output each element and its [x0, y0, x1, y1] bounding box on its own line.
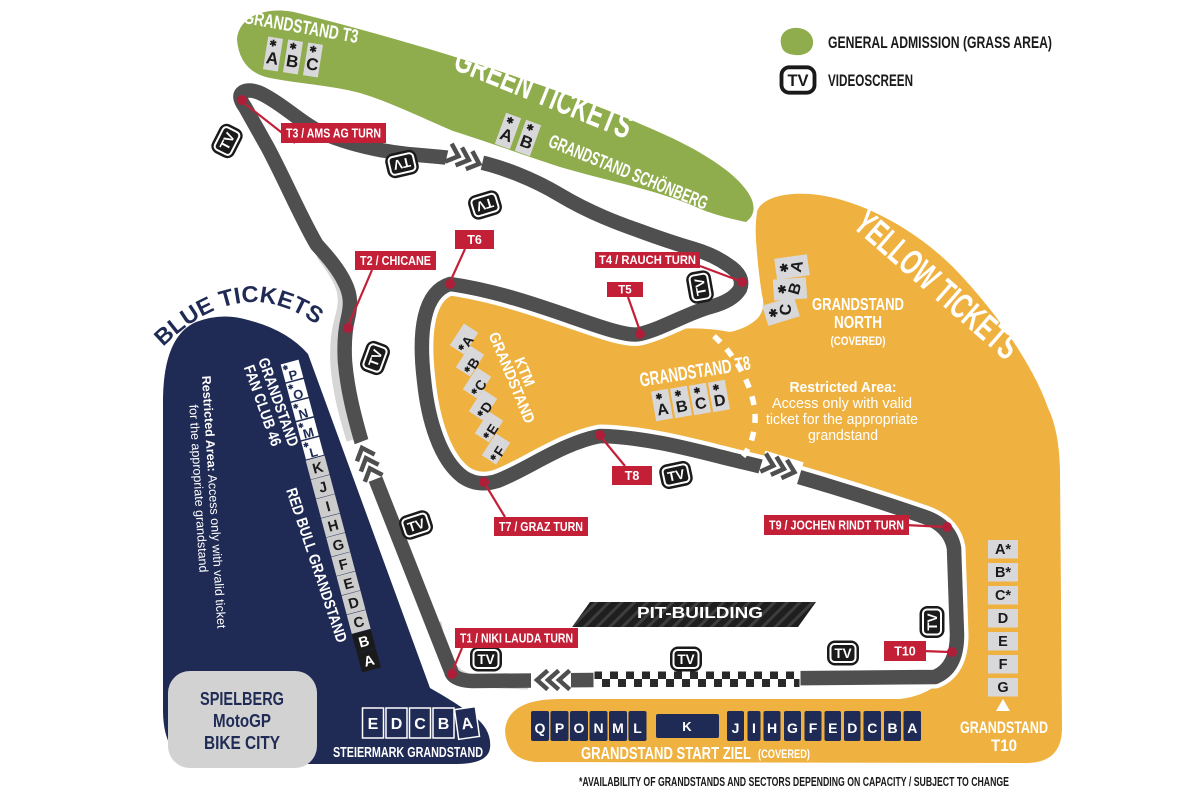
svg-text:F: F — [999, 657, 1008, 673]
svg-text:T10: T10 — [894, 645, 916, 659]
svg-text:F: F — [809, 720, 818, 736]
svg-text:M: M — [612, 720, 624, 736]
svg-text:C: C — [414, 716, 426, 733]
svg-text:TV: TV — [834, 646, 851, 661]
svg-text:STEIERMARK GRANDSTAND: STEIERMARK GRANDSTAND — [333, 744, 483, 761]
svg-text:H: H — [767, 720, 777, 736]
svg-text:NORTH: NORTH — [834, 312, 882, 332]
svg-text:*AVAILABILITY OF GRANDSTANDS A: *AVAILABILITY OF GRANDSTANDS AND SECTORS… — [579, 775, 1009, 789]
svg-text:E: E — [828, 720, 837, 736]
svg-text:T10: T10 — [991, 736, 1017, 755]
svg-text:G: G — [787, 720, 798, 736]
svg-text:TV: TV — [925, 613, 940, 630]
svg-text:G: G — [997, 680, 1008, 696]
svg-text:J: J — [732, 720, 740, 736]
svg-text:A: A — [907, 720, 917, 736]
svg-text:T3 / AMS AG TURN: T3 / AMS AG TURN — [286, 127, 381, 141]
svg-text:T5: T5 — [618, 285, 632, 297]
svg-text:Restricted Area:: Restricted Area: — [790, 379, 897, 396]
svg-text:T9 / JOCHEN RINDT TURN: T9 / JOCHEN RINDT TURN — [769, 519, 904, 533]
svg-text:D: D — [998, 611, 1008, 627]
svg-text:T2 / CHICANE: T2 / CHICANE — [360, 254, 431, 268]
svg-text:T8: T8 — [625, 469, 640, 483]
svg-text:TV: TV — [477, 652, 494, 667]
svg-text:TV: TV — [677, 652, 694, 667]
svg-text:Q: Q — [535, 720, 546, 736]
svg-text:✱: ✱ — [768, 308, 780, 318]
svg-text:B: B — [438, 716, 450, 733]
svg-text:(COVERED): (COVERED) — [831, 336, 886, 348]
svg-text:grandstand: grandstand — [808, 427, 878, 444]
svg-text:TV: TV — [692, 277, 710, 297]
svg-text:Access only with valid: Access only with valid — [772, 395, 912, 412]
svg-text:B: B — [887, 720, 897, 736]
svg-text:GRANDSTAND: GRANDSTAND — [960, 718, 1048, 737]
svg-text:SPIELBERG: SPIELBERG — [200, 689, 284, 709]
svg-text:C*: C* — [995, 588, 1011, 604]
svg-text:VIDEOSCREEN: VIDEOSCREEN — [828, 71, 913, 90]
svg-text:N: N — [593, 720, 603, 736]
svg-text:PIT-BUILDING: PIT-BUILDING — [637, 605, 763, 622]
svg-text:A*: A* — [995, 542, 1011, 558]
svg-text:GENERAL ADMISSION (GRASS AREA): GENERAL ADMISSION (GRASS AREA) — [828, 33, 1052, 52]
svg-text:P: P — [555, 720, 564, 736]
svg-text:E: E — [998, 634, 1008, 650]
svg-text:O: O — [574, 720, 585, 736]
svg-text:E: E — [368, 716, 379, 733]
svg-text:T4 / RAUCH TURN: T4 / RAUCH TURN — [599, 255, 696, 267]
svg-text:BIKE CITY: BIKE CITY — [204, 733, 280, 753]
svg-text:I: I — [752, 720, 756, 736]
svg-text:(COVERED): (COVERED) — [758, 747, 810, 761]
svg-text:GRANDSTAND: GRANDSTAND — [812, 294, 904, 314]
svg-text:T7 / GRAZ TURN: T7 / GRAZ TURN — [499, 520, 583, 534]
svg-text:MotoGP: MotoGP — [213, 711, 271, 731]
svg-text:B*: B* — [995, 565, 1011, 581]
svg-text:L: L — [633, 720, 642, 736]
svg-text:K: K — [682, 719, 692, 734]
svg-text:ticket for the appropriate: ticket for the appropriate — [766, 411, 918, 428]
svg-text:T6: T6 — [467, 233, 482, 247]
svg-text:GRANDSTAND START ZIEL: GRANDSTAND START ZIEL — [581, 743, 751, 763]
svg-text:TV: TV — [787, 72, 808, 90]
svg-text:C: C — [867, 720, 877, 736]
svg-text:D: D — [847, 720, 857, 736]
svg-text:T1 / NIKI LAUDA TURN: T1 / NIKI LAUDA TURN — [460, 632, 573, 646]
svg-text:D: D — [391, 716, 403, 733]
